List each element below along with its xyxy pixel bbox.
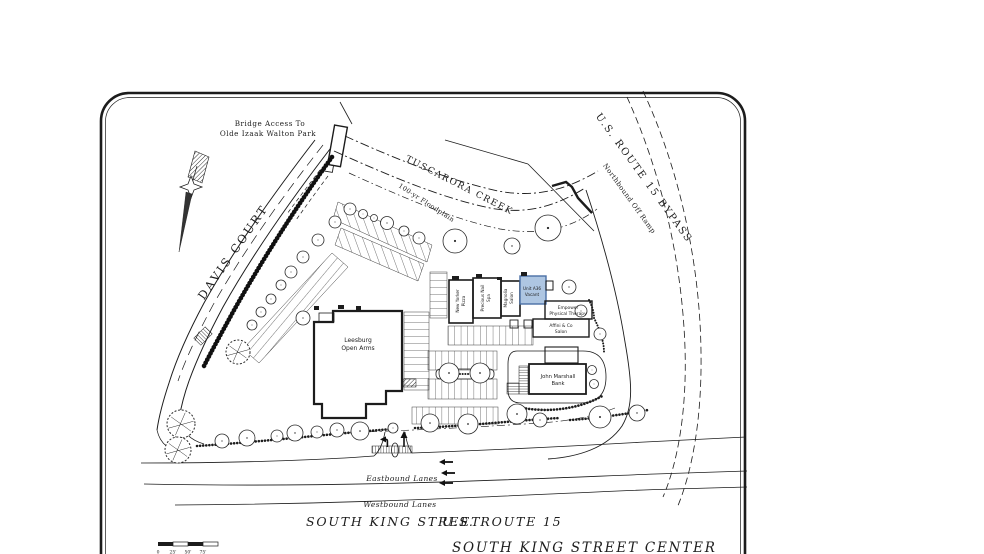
entrance-arrows	[380, 431, 408, 447]
empower-label-1: Empower	[558, 305, 579, 311]
site-plan-drawing: 0 25' 50' 75' Bridge Access To Olde Izaa…	[0, 0, 984, 554]
scale-tick: 0	[157, 550, 160, 554]
davis-court-label: DAVIS COURT	[195, 202, 271, 303]
us-route-15-label: U.S. ROUTE 15	[442, 514, 562, 529]
leesburg-open-arms-building	[314, 305, 416, 418]
leesburg-label-1: Leesburg	[344, 337, 372, 344]
scale-tick: 25'	[170, 550, 177, 554]
bridge-access-label-1: Bridge Access To	[235, 119, 305, 128]
leesburg-label-2: Open Arms	[341, 345, 374, 352]
affini-label-1: Affini & Co	[549, 323, 573, 329]
unit1-label-1: New Yorker	[455, 289, 460, 313]
north-arrow-icon	[179, 151, 209, 252]
vacant-unit-label-2: Vacant	[525, 292, 540, 297]
bank-label-2: Bank	[551, 381, 564, 387]
unit3-label-1: Magnolia	[503, 288, 508, 307]
tuscarora-creek-lines	[334, 136, 598, 210]
northbound-ramp-label: Northbound Off Ramp	[601, 162, 657, 235]
tuscarora-creek-label: TUSCARORA CREEK	[404, 154, 515, 217]
scale-tick: 75'	[200, 550, 207, 554]
unit2-label-1: Precious Nail	[480, 285, 485, 312]
bridge-access-label-2: Olde Izaak Walton Park	[220, 129, 316, 138]
scale-bar: 0 25' 50' 75'	[157, 542, 218, 554]
floodplain-label: 100-yr Floodplain	[397, 182, 456, 224]
scale-tick: 50'	[185, 550, 192, 554]
westbound-lanes-label: Westbound Lanes	[363, 500, 436, 509]
unit1-label-2: Pizza	[461, 295, 466, 306]
drawing-title: SOUTH KING STREET CENTER	[452, 540, 717, 554]
vacant-unit-label-1: Unit A36	[523, 286, 541, 291]
unit3-label-2: Salon	[509, 292, 514, 304]
south-king-street-lines	[141, 437, 747, 505]
eastbound-lanes-label: Eastbound Lanes	[365, 474, 438, 483]
bank-canopy	[545, 347, 578, 363]
empower-label-2: Physical Therapy	[549, 311, 587, 317]
drive-thru-lanes	[519, 366, 528, 394]
unit2-label-2: Spa	[486, 294, 491, 302]
affini-label-2: Salon	[555, 329, 567, 335]
route15-bypass-lines	[627, 91, 701, 508]
site-plan-page: 0 25' 50' 75' Bridge Access To Olde Izaa…	[0, 0, 984, 554]
bank-label-1: John Marshall	[540, 374, 576, 380]
